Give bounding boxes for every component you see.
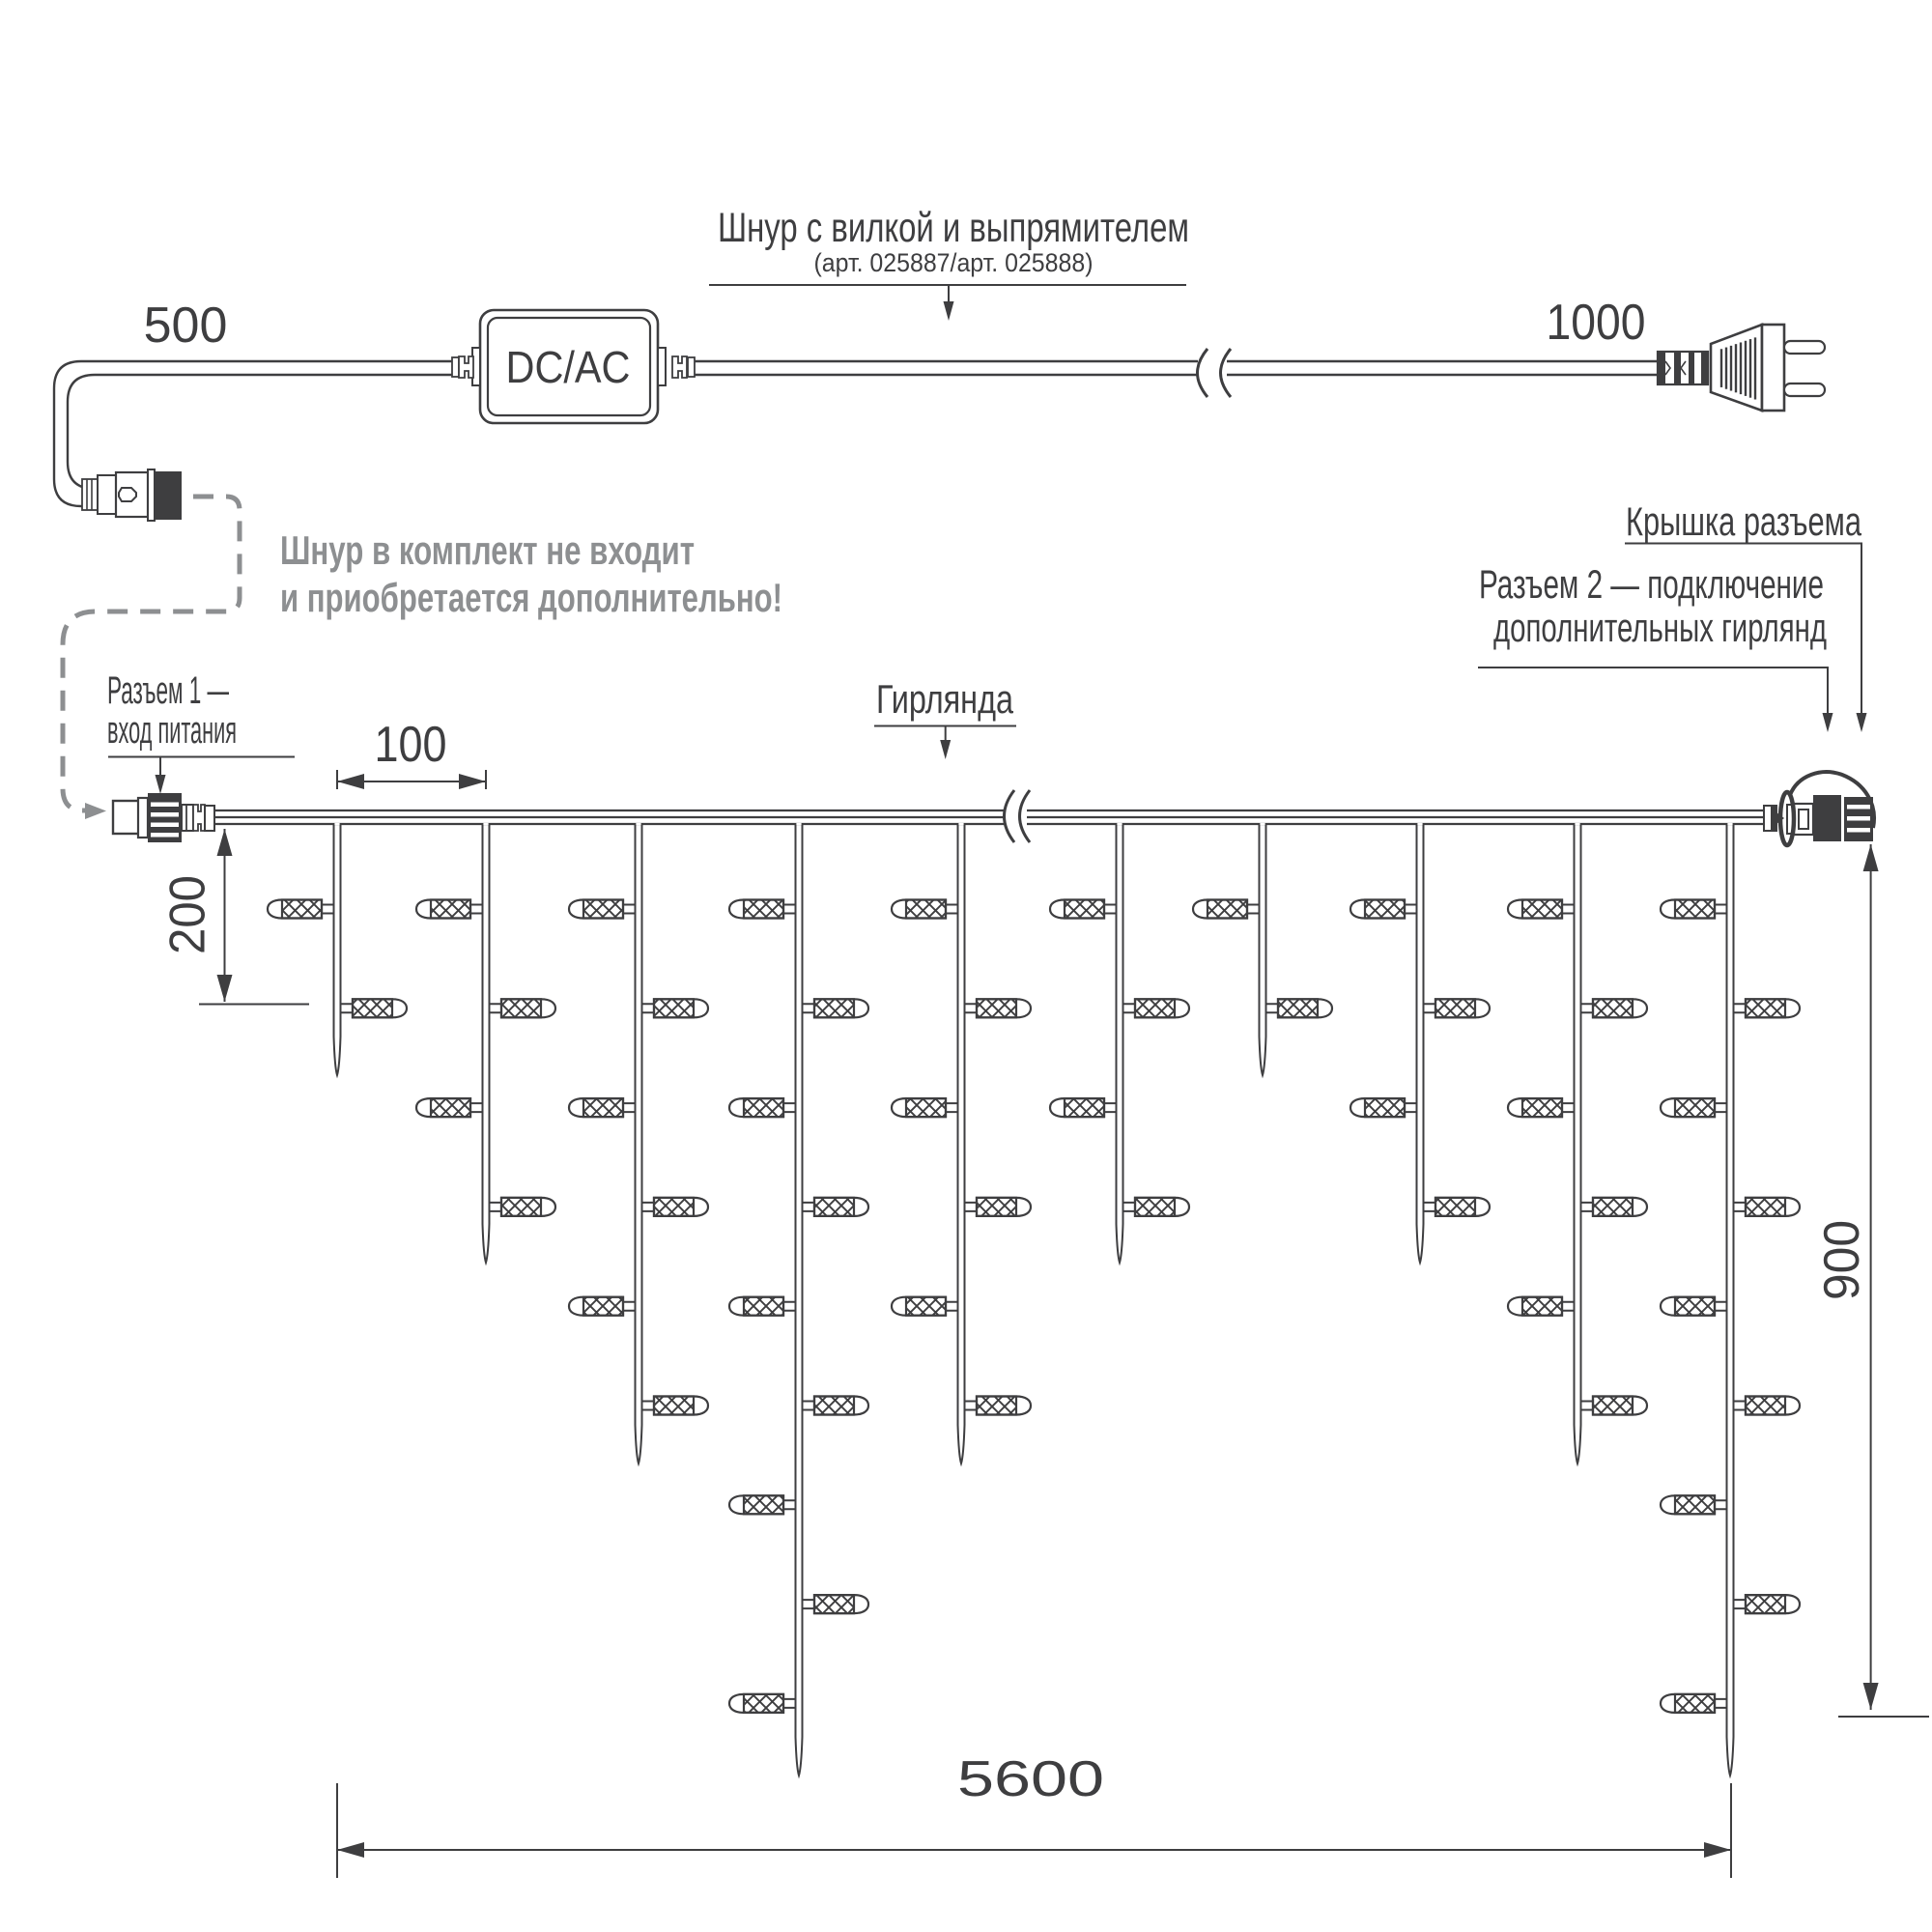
- svg-text:Шнур с вилкой и выпрямителем: Шнур с вилкой и выпрямителем: [718, 205, 1189, 251]
- svg-text:дополнительных гирлянд: дополнительных гирлянд: [1493, 605, 1827, 650]
- svg-text:900: 900: [1814, 1220, 1870, 1300]
- svg-text:1000: 1000: [1547, 295, 1646, 351]
- svg-text:Разъем 1 —: Разъем 1 —: [107, 669, 229, 712]
- svg-text:(арт. 025887/арт. 025888): (арт. 025887/арт. 025888): [814, 248, 1094, 277]
- svg-text:500: 500: [144, 298, 228, 354]
- svg-text:и приобретается дополнительно!: и приобретается дополнительно!: [280, 575, 782, 620]
- svg-text:вход питания: вход питания: [107, 709, 237, 752]
- svg-text:Крышка разъема: Крышка разъема: [1626, 498, 1861, 544]
- svg-text:100: 100: [375, 717, 447, 773]
- svg-text:200: 200: [160, 875, 216, 954]
- svg-text:DC/AC: DC/AC: [506, 342, 631, 392]
- svg-text:5600: 5600: [957, 1751, 1104, 1807]
- svg-text:Шнур в комплект не входит: Шнур в комплект не входит: [280, 527, 695, 573]
- svg-text:Разъем 2 — подключение: Разъем 2 — подключение: [1479, 561, 1824, 607]
- svg-text:Гирлянда: Гирлянда: [876, 676, 1013, 722]
